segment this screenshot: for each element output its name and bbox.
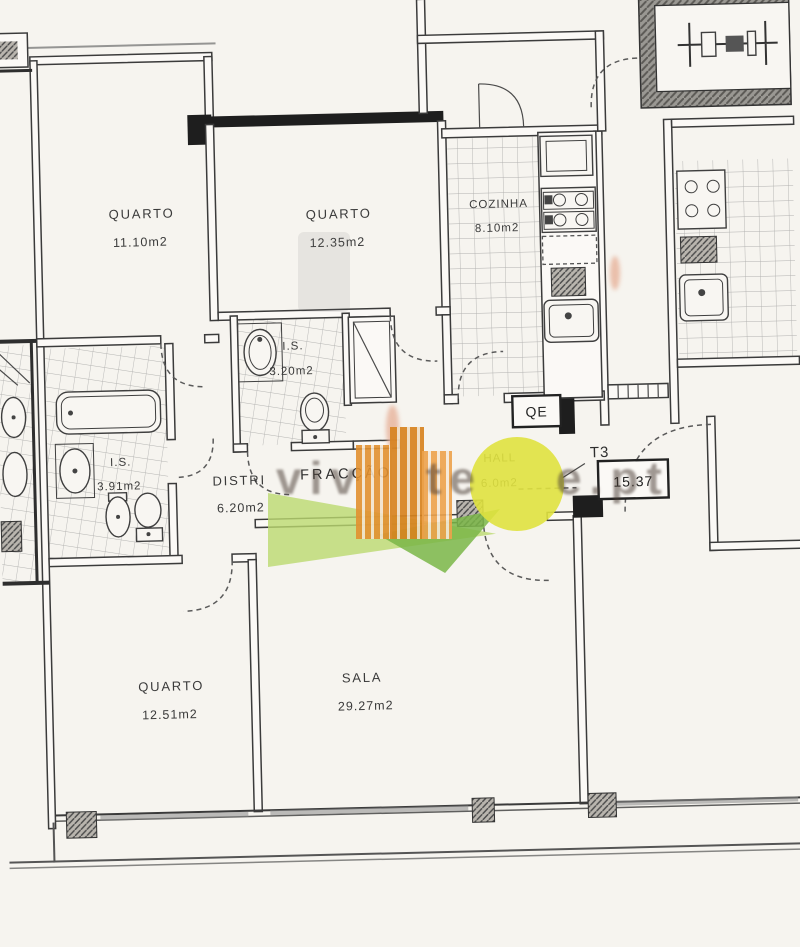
room-label-distri: DISTRI: [212, 472, 266, 488]
fridge-icon: [540, 135, 593, 176]
room-area-cozinha: 8.10m2: [475, 222, 520, 235]
room-area-quarto1: 11.10m2: [113, 235, 168, 250]
scan-smudge: [386, 405, 399, 451]
room-area-quarto3: 12.51m2: [142, 707, 198, 722]
room-label-is2: I.S.: [110, 457, 132, 470]
scan-smudge: [610, 256, 620, 290]
scan-shadow-artifact: [298, 232, 350, 312]
room-area-is1: 3.20m2: [269, 365, 314, 378]
door-arc-quarto3: [182, 560, 233, 611]
toilet-icon: [300, 393, 329, 444]
shower-icon: [348, 316, 396, 403]
bidet-icon: [105, 493, 130, 538]
adjacent-sink-icon: [679, 274, 728, 321]
vent-grate: [608, 383, 668, 398]
room-label-is1: I.S.: [282, 340, 304, 353]
toilet2-icon: [134, 493, 162, 542]
room-area-sala: 29.27m2: [338, 698, 394, 713]
unit-type-label: T3: [590, 444, 610, 461]
door-arc-sala: [483, 516, 549, 582]
kitchen-worktop-block: [551, 267, 586, 296]
room-label-quarto2: QUARTO: [306, 206, 372, 223]
elevator-shaft: [638, 0, 791, 108]
room-area-is2: 3.91m2: [97, 480, 142, 493]
fraction-label: FRACÇÃO: [300, 464, 392, 483]
room-label-cozinha: COZINHA: [469, 198, 528, 211]
kitchen-sink-icon: [544, 299, 599, 342]
room-area-distri: 6.20m2: [217, 500, 265, 515]
scanned-floor-plan-page: QE 15.37 QUARTO 11.10m2 QUARTO 12.35m2 C…: [0, 0, 800, 947]
hall-dashed-line: [519, 488, 577, 489]
stove-icon: [541, 187, 596, 232]
level-marker-box: 15.37: [598, 459, 669, 499]
electrical-panel-label: QE: [525, 403, 548, 420]
door-arc-bathroom2: [175, 439, 214, 478]
room-area-hall: 6.0m2: [481, 477, 518, 490]
room-label-hall: HALL: [483, 452, 516, 465]
floor-plan-drawing: QE 15.37 QUARTO 11.10m2 QUARTO 12.35m2 C…: [0, 0, 800, 947]
t3-leader-line: [562, 463, 585, 478]
room-label-sala: SALA: [342, 669, 383, 685]
adjacent-worktop-block: [680, 236, 717, 263]
electrical-panel-box: QE: [512, 395, 561, 427]
room-label-quarto3: QUARTO: [138, 678, 204, 695]
kitchen-floor-tiles: [447, 137, 545, 397]
bathtub-icon: [56, 390, 161, 435]
adjacent-stove-icon: [677, 170, 726, 229]
level-marker-value: 15.37: [613, 473, 653, 490]
door-arc-stair-landing: [479, 83, 524, 128]
room-label-quarto1: QUARTO: [109, 205, 175, 222]
door-arc-quarto2: [390, 315, 437, 362]
